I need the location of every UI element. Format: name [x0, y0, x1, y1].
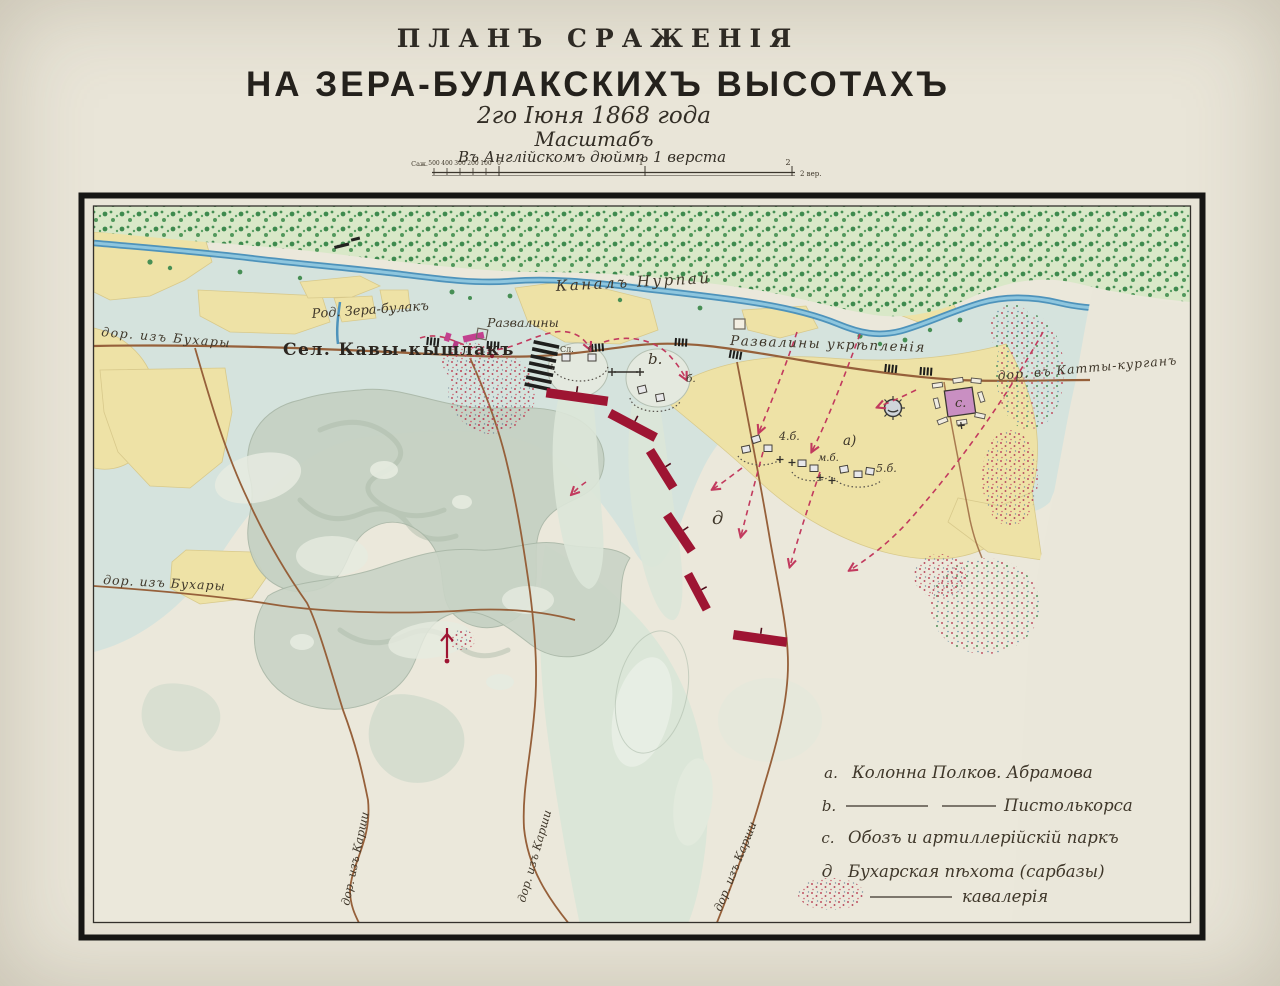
marker-park: с. — [955, 396, 966, 411]
legend-label: кавалерія — [962, 887, 1048, 906]
scale-tick-label: 1 — [638, 158, 643, 167]
legend-label: Бухарская пѣхота (сарбазы) — [847, 862, 1105, 881]
scale-tick-label: 200 — [467, 160, 479, 167]
marker-bat-right: б. — [588, 345, 595, 354]
scale-tick-label: 300 — [454, 160, 466, 167]
legend-key: a. — [824, 764, 838, 782]
label-village: Сел. Кавы-кышлакъ — [283, 340, 515, 360]
label-ruins: Развалины — [486, 315, 559, 330]
page-subtitle: НА ЗЕРА-БУЛАКСКИХЪ ВЫСОТАХЪ — [246, 65, 950, 104]
scale-tick-label: 2 — [785, 158, 790, 167]
scale-tick-label: 0 — [497, 160, 501, 167]
marker-col-a: а) — [843, 433, 856, 449]
marker-b: b. — [648, 350, 662, 368]
marker-battery4: 4.б. — [778, 430, 800, 443]
battle-map-svg: ПЛАНЪ СРАЖЕНІЯ НА ЗЕРА-БУЛАКСКИХЪ ВЫСОТА… — [0, 0, 1280, 986]
legend-key: b. — [822, 797, 836, 815]
ruin-square — [734, 319, 745, 329]
scale-end-label: 2 вер. — [800, 170, 821, 178]
legend-key: c. — [821, 829, 834, 847]
title-date: 2го Іюня 1868 года — [476, 103, 711, 129]
legend-label: Колонна Полков. Абрамова — [851, 763, 1093, 782]
legend-item-c: c. Обозъ и артиллерійскій паркъ — [821, 828, 1118, 847]
redoubt-circle — [881, 396, 905, 420]
legend-stipple-swatch — [798, 878, 864, 910]
marker-battery-m: м.б. — [818, 453, 839, 464]
scale-tick-label: 500 — [428, 160, 440, 167]
page-title: ПЛАНЪ СРАЖЕНІЯ — [397, 24, 800, 53]
scale-tick-label: 400 — [441, 160, 453, 167]
legend-item-a: a. Колонна Полков. Абрамова — [824, 763, 1093, 782]
marker-battery5: 5.б. — [876, 462, 897, 475]
scanned-map-page: ПЛАНЪ СРАЖЕНІЯ НА ЗЕРА-БУЛАКСКИХЪ ВЫСОТА… — [0, 0, 1280, 986]
legend-label: Обозъ и артиллерійскій паркъ — [848, 828, 1119, 847]
map-canvas: Каналъ Нурпай дор. изъ Бухары Род. Зера-… — [94, 206, 1190, 925]
legend-label: Пистолькорса — [1003, 796, 1133, 815]
marker-sarbaz: д — [712, 508, 723, 529]
title-block: ПЛАНЪ СРАЖЕНІЯ НА ЗЕРА-БУЛАКСКИХЪ ВЫСОТА… — [246, 24, 950, 166]
marker-b-small: б. — [686, 373, 696, 385]
legend-item-d: д Бухарская пѣхота (сарбазы) — [822, 862, 1105, 882]
scale-unit-label: Саж. — [411, 160, 428, 168]
scale-tick-label: 100 — [480, 160, 492, 167]
south-wash-faint — [718, 678, 822, 762]
marker-bat-left: Сл. — [560, 345, 574, 354]
